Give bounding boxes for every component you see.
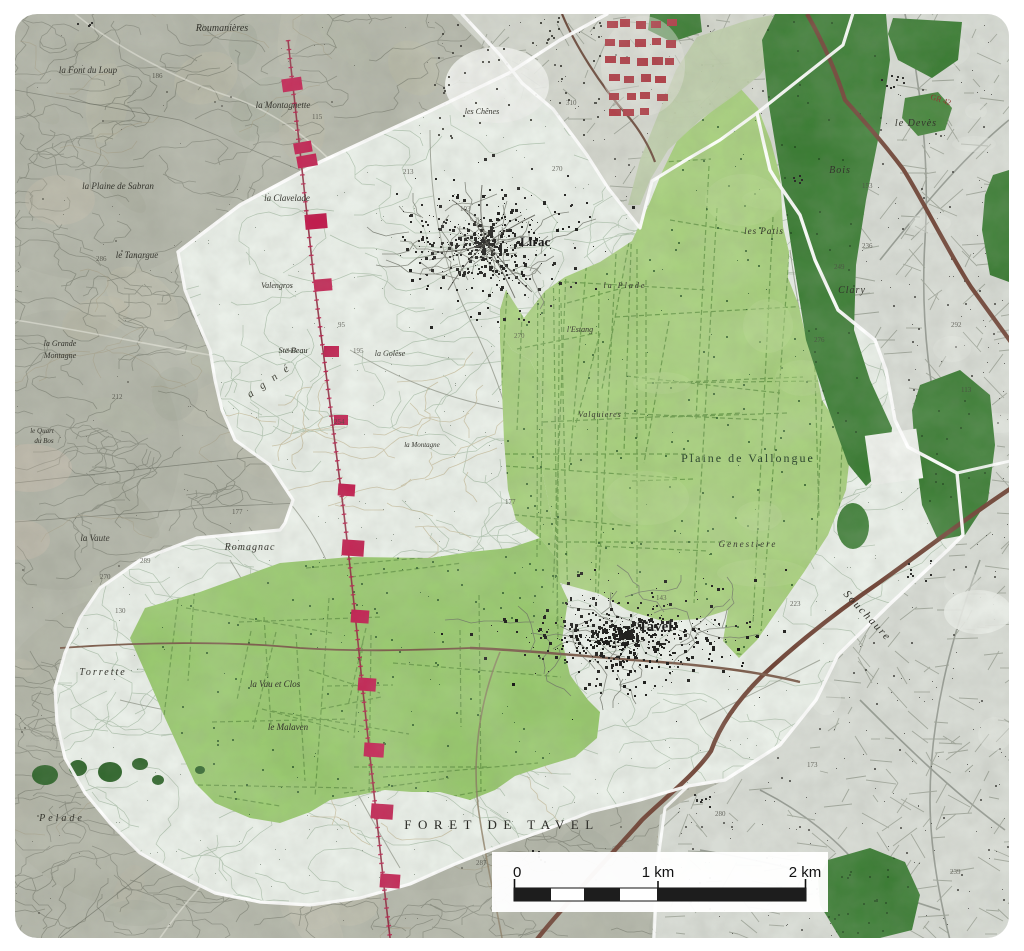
svg-text:0: 0 <box>513 864 521 881</box>
svg-text:1 km: 1 km <box>642 864 675 881</box>
svg-text:2 km: 2 km <box>789 864 822 881</box>
